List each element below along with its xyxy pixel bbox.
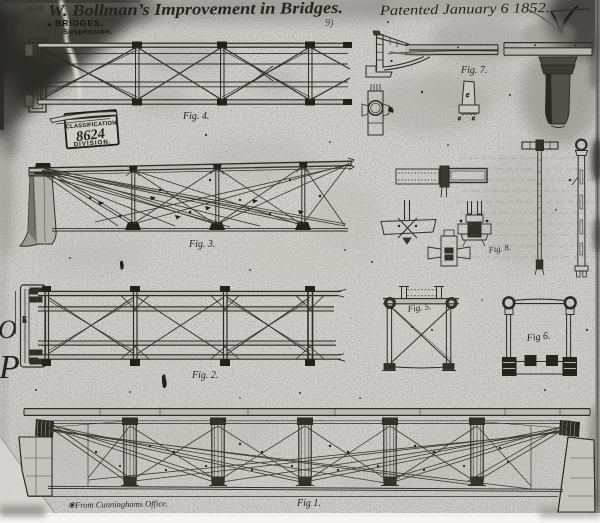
svg-text:W. Bollman’s Improvement in Br: W. Bollman’s Improvement in Bridges.: [48, 0, 343, 20]
svg-text:Fig 1.: Fig 1.: [296, 498, 321, 509]
svg-text:8600: 8600: [25, 3, 44, 14]
svg-text:P: P: [0, 349, 20, 386]
svg-text:9): 9): [325, 18, 334, 29]
svg-text:O: O: [0, 315, 17, 344]
svg-text:Fig. 3.: Fig. 3.: [188, 239, 215, 250]
svg-text:Suspension.: Suspension.: [63, 27, 113, 36]
svg-text:Patented January 6 1852.: Patented January 6 1852.: [379, 1, 550, 19]
svg-text:Fig. 2.: Fig. 2.: [191, 370, 218, 381]
svg-text:143: 143: [22, 316, 27, 324]
svg-text:Fig. 7.: Fig. 7.: [460, 65, 487, 76]
svg-text:Fig. 4.: Fig. 4.: [182, 111, 209, 122]
svg-text:c: c: [458, 116, 461, 122]
svg-text:c: c: [472, 116, 475, 122]
svg-text:▲: ▲: [46, 21, 53, 28]
svg-text:❀From Cunninghams Office.: ❀From Cunninghams Office.: [68, 498, 168, 510]
